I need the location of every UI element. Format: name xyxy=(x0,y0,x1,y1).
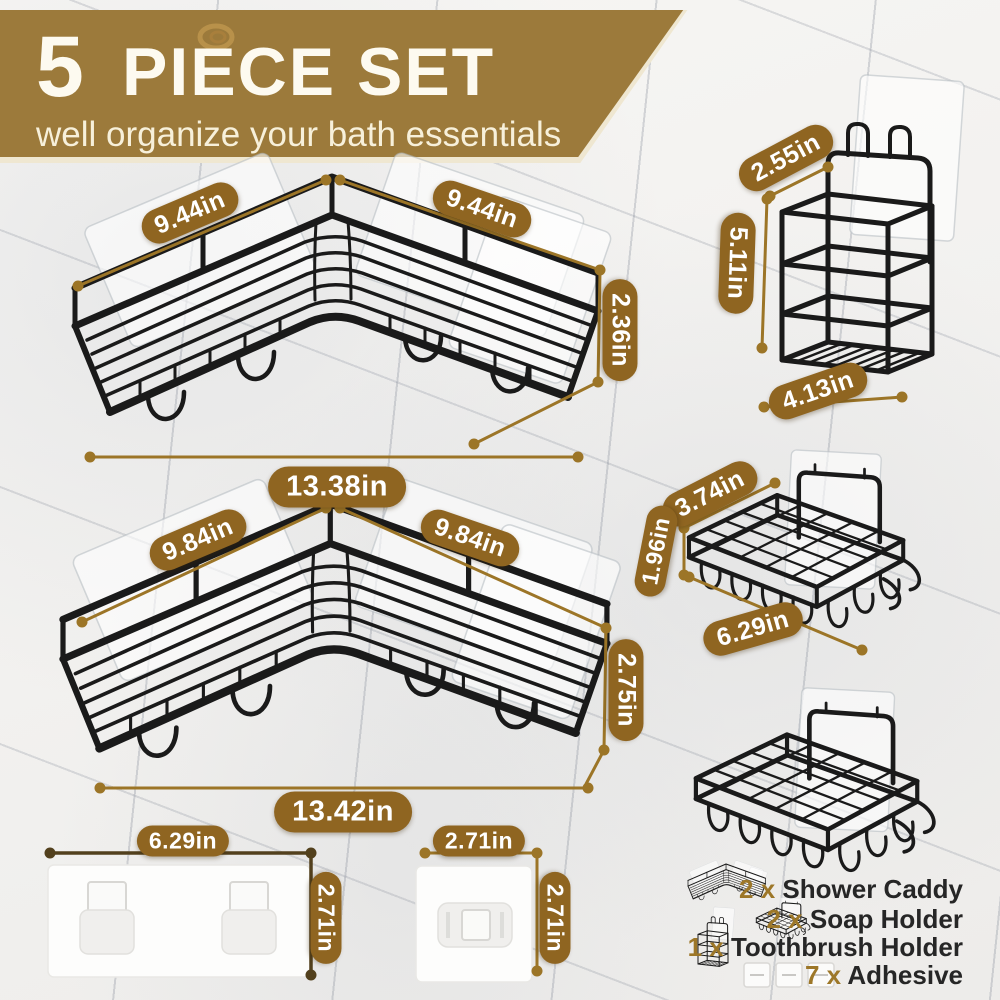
legend-item-soap-holder: 2 x Soap Holder xyxy=(766,904,963,935)
measurement-badge-adhesive-square-width: 2.71in xyxy=(433,826,525,857)
measurement-badge-caddy2-height: 2.75in xyxy=(609,639,644,741)
adhesive-wide-dimension-lines xyxy=(45,848,317,981)
legend-qty: 1 x xyxy=(688,932,724,962)
measurement-badge-toothbrush-height: 5.11in xyxy=(718,212,756,314)
legend-item-toothbrush-holder: 1 x Toothbrush Holder xyxy=(688,932,963,963)
legend-item-adhesive: 7 x Adhesive xyxy=(805,960,963,991)
legend-qty: 2 x xyxy=(766,904,802,934)
legend-label: Toothbrush Holder xyxy=(731,932,963,962)
measurement-badge-caddy1-width: 13.38in xyxy=(268,467,406,508)
legend-item-shower-caddy: 2 x Shower Caddy xyxy=(739,874,963,905)
legend-qty: 7 x xyxy=(805,960,841,990)
legend-qty: 2 x xyxy=(739,874,775,904)
product-infographic: 5 PIECE SET well organize your bath esse… xyxy=(0,0,1000,1000)
measurement-badge-adhesive-wide-height: 2.71in xyxy=(311,872,342,964)
measurement-badge-adhesive-wide-width: 6.29in xyxy=(137,826,229,857)
legend-label: Soap Holder xyxy=(810,904,963,934)
measurement-badge-caddy1-height: 2.36in xyxy=(603,279,638,381)
legend-label: Shower Caddy xyxy=(782,874,963,904)
adhesive-square-dimension-lines xyxy=(420,848,543,977)
legend-label: Adhesive xyxy=(847,960,963,990)
measurement-badge-adhesive-square-height: 2.71in xyxy=(540,872,571,964)
measurement-badge-caddy2-width: 13.42in xyxy=(274,792,412,833)
